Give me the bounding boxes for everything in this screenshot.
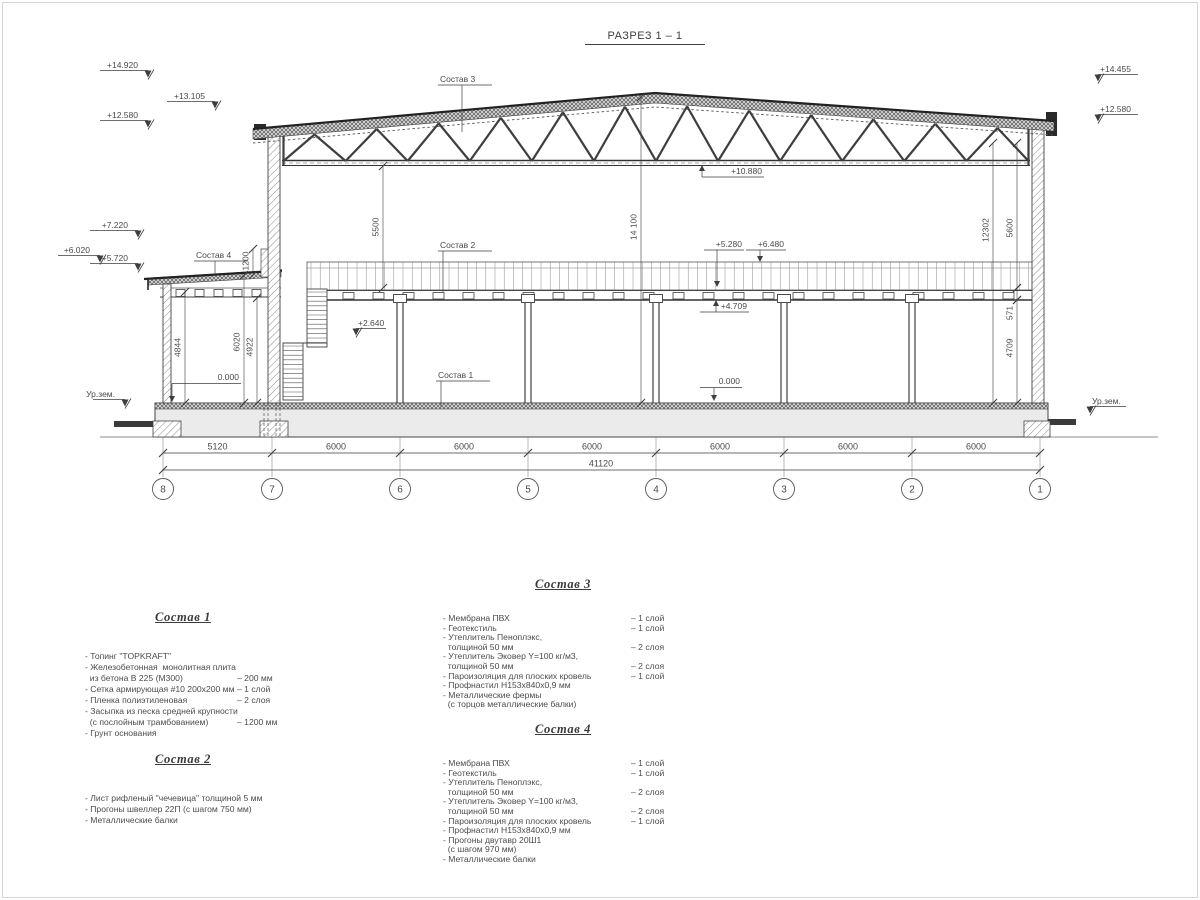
svg-text:Состав 1: Состав 1 [438,370,474,380]
svg-text:8: 8 [160,485,166,496]
spec-item-value: – 1 слой [631,624,664,634]
level-mark-m14455: +14.455 [1095,64,1139,84]
grid-bubbles: 87654321 [153,479,1051,500]
level-mark-zero2: 0.000 [700,376,742,401]
svg-text:1: 1 [1037,485,1043,496]
left-entry-step [114,421,158,427]
svg-text:+13.105: +13.105 [174,91,205,101]
spec-item-text: (с послойным трамбованием) [85,717,237,728]
spec-block-1: Состав 1 - Топинг "TOPKRAFT"- Железобето… [85,610,281,739]
svg-text:6000: 6000 [838,442,858,452]
svg-text:6000: 6000 [454,442,474,452]
hall-columns [394,295,919,404]
svg-text:Ур.зем.: Ур.зем. [86,389,115,399]
leader-s2: Состав 2 [438,240,492,292]
spec-item-text: - Металлические балки [85,815,237,826]
svg-text:41120: 41120 [589,459,613,469]
spec-item-value: – 1 слой [237,684,270,695]
spec-item: - Лист рифленый "чечевица" толщиной 5 мм [85,793,281,804]
level-mark-m5280: +5.280 [704,239,744,287]
level-mark-m13105: +13.105 [167,91,221,111]
level-mark-m12580r: +12.580 [1095,104,1139,124]
spec-block-2: Состав 2 - Лист рифленый "чечевица" толщ… [85,752,281,826]
dimension-chain: 512060006000600060006000600041120 [159,437,1044,477]
drawing-sheet: РАЗРЕЗ 1 – 1 [0,0,1200,900]
spec-item: (с послойным трамбованием)– 1200 мм [85,717,281,728]
level-mark-m4709: +4.709 [700,300,749,312]
spec-item-text: - Сетка армирующая #10 200х200 мм [85,684,237,695]
spec-item-text: - Пленка полиэтиленовая [85,695,237,706]
svg-text:+12.580: +12.580 [107,110,138,120]
spec-item: - Прогоны швеллер 22П (с шагом 750 мм) [85,804,281,815]
vdim-d14100: 14 100 [629,93,646,407]
svg-text:+14.920: +14.920 [107,60,138,70]
spec-item-value: – 2 слоя [631,643,664,653]
building-section-drawing: 5120600060006000600060006000411208765432… [0,0,1200,560]
spec-item-text: - Металлические балки [443,855,631,865]
spec-item: (с торцов металлические балки) [443,700,683,710]
svg-text:2: 2 [909,485,915,496]
svg-text:+5.280: +5.280 [716,239,743,249]
spec-block-3: Состав 3 - Мембрана ПВХ– 1 слой- Геотекс… [443,577,683,710]
svg-text:+6.480: +6.480 [758,239,785,249]
svg-text:Состав 2: Состав 2 [440,240,476,250]
spec-item-text: (с торцов металлические балки) [443,700,631,710]
floor-slab [100,403,1158,437]
spec-item: - Засыпка из песка средней крупности [85,706,281,717]
svg-text:6000: 6000 [966,442,986,452]
svg-text:Ур.зем.: Ур.зем. [1092,396,1121,406]
svg-text:6000: 6000 [710,442,730,452]
spec-item: из бетона В 225 (М300)– 200 мм [85,673,281,684]
svg-text:+6.020: +6.020 [64,245,91,255]
level-mark-m6020: +6.020 [58,245,106,265]
vdim-d571: 571 [1005,284,1022,320]
section-title: РАЗРЕЗ 1 – 1 [585,30,705,45]
spec-item-text: - Железобетонная монолитная плита [85,662,237,673]
spec-item-text: из бетона В 225 (М300) [85,673,237,684]
svg-text:4: 4 [653,485,659,496]
spec-3-list: - Мембрана ПВХ– 1 слой- Геотекстиль– 1 с… [443,614,683,710]
svg-text:4922: 4922 [245,337,255,356]
walls [254,112,1057,403]
right-entry-step [1048,419,1076,425]
level-mark-m12580l: +12.580 [100,110,154,130]
svg-text:+14.455: +14.455 [1100,64,1131,74]
spec-2-title: Состав 2 [85,752,281,767]
spec-4-list: - Мембрана ПВХ– 1 слой- Геотекстиль– 1 с… [443,759,683,865]
level-mark-m14920: +14.920 [100,60,154,80]
svg-text:5500: 5500 [371,217,381,236]
svg-text:+5.720: +5.720 [102,253,129,263]
annex-left-wall [163,284,171,403]
svg-text:14 100: 14 100 [629,214,639,240]
spec-item-text: - Топинг "TOPKRAFT" [85,651,237,662]
svg-text:5: 5 [525,485,531,496]
spec-item: - Железобетонная монолитная плита [85,662,281,673]
svg-text:5120: 5120 [207,442,227,452]
svg-text:7: 7 [269,485,275,496]
spec-item-text: - Засыпка из песка средней крупности [85,706,237,717]
spec-item-text: - Прогоны швеллер 22П (с шагом 750 мм) [85,804,237,815]
parapet-ledge [261,249,268,277]
svg-text:6020: 6020 [232,332,242,351]
svg-text:4844: 4844 [173,338,183,357]
svg-text:12302: 12302 [981,218,991,242]
svg-text:+4.709: +4.709 [721,301,748,311]
svg-text:+7.220: +7.220 [102,220,129,230]
level-mark-m2640: +2.640 [353,318,387,338]
spec-item-value: – 1200 мм [237,717,278,728]
vdim-d5600: 5600 [1005,139,1022,292]
svg-text:4709: 4709 [1005,338,1015,357]
spec-item-value: – 1 слой [631,817,664,827]
svg-text:5600: 5600 [1005,218,1015,237]
svg-text:6000: 6000 [582,442,602,452]
spec-item: - Грунт основания [85,728,281,739]
svg-text:+12.580: +12.580 [1100,104,1131,114]
spec-block-4: Состав 4 - Мембрана ПВХ– 1 слой- Геотекс… [443,722,683,865]
svg-text:Состав 3: Состав 3 [440,74,476,84]
spec-item: - Металлические балки [443,855,683,865]
spec-item: - Металлические балки [85,815,281,826]
spec-item-value: – 2 слоя [631,788,664,798]
svg-text:571: 571 [1005,306,1015,320]
spec-item: - Сетка армирующая #10 200х200 мм– 1 сло… [85,684,281,695]
vdim-d4922: 4922 [245,294,262,407]
svg-text:Состав 4: Состав 4 [196,250,232,260]
spec-item-value: – 1 слой [631,769,664,779]
svg-text:+2.640: +2.640 [358,318,385,328]
level-mark-m7220: +7.220 [90,220,144,240]
spec-item-value: – 2 слоя [237,695,270,706]
hall-right-wall [1032,129,1044,403]
stairs [283,289,327,400]
spec-item: - Топинг "TOPKRAFT" [85,651,281,662]
svg-text:+10.880: +10.880 [731,166,762,176]
level-mark-zero1: 0.000 [169,372,241,402]
spec-item-text: - Лист рифленый "чечевица" толщиной 5 мм [85,793,237,804]
spec-item-value: – 200 мм [237,673,273,684]
svg-text:0.000: 0.000 [719,376,741,386]
leader-s1: Состав 1 [436,370,490,407]
spec-item-value: – 1 слой [631,672,664,682]
level-mark-ground_left: Ур.зем. [86,389,131,409]
spec-4-title: Состав 4 [443,722,683,737]
leader-s3: Состав 3 [438,74,492,132]
level-mark-m10880: +10.880 [699,165,764,177]
spec-3-title: Состав 3 [443,577,683,592]
svg-text:6: 6 [397,485,403,496]
level-mark-m6480: +6.480 [746,239,786,262]
svg-text:0.000: 0.000 [218,372,240,382]
spec-item-text: - Грунт основания [85,728,237,739]
spec-1-list: - Топинг "TOPKRAFT"- Железобетонная моно… [85,651,281,739]
level-mark-ground_right: Ур.зем. [1087,396,1127,416]
svg-text:3: 3 [781,485,787,496]
spec-2-list: - Лист рифленый "чечевица" толщиной 5 мм… [85,793,281,826]
vdim-d12302: 12302 [981,139,998,407]
svg-text:6000: 6000 [326,442,346,452]
spec-item: - Пленка полиэтиленовая– 2 слоя [85,695,281,706]
vdim-d4844: 4844 [173,288,190,407]
hall-left-wall [268,133,280,403]
spec-1-title: Состав 1 [85,610,281,625]
